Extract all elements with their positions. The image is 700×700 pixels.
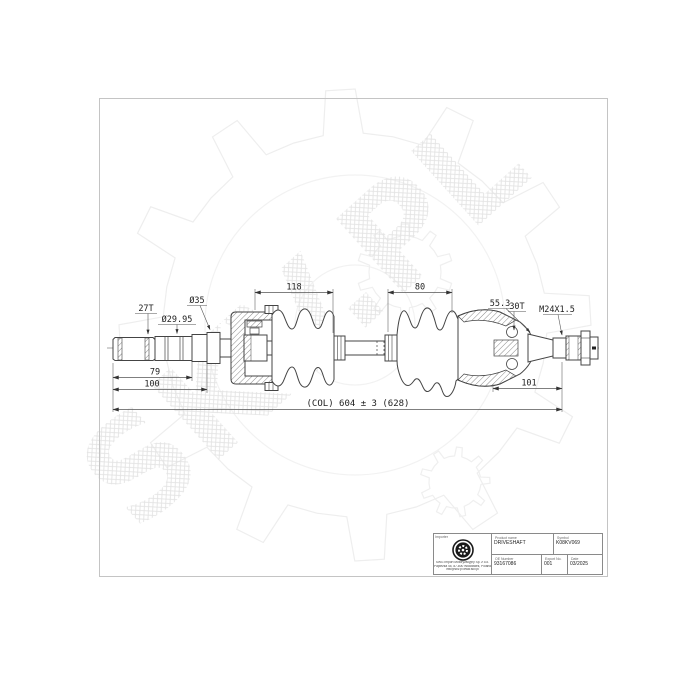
outer-cv-joint (458, 310, 553, 387)
export-no-cell: Export No. 001 (542, 555, 568, 575)
importer-label: Importer (434, 534, 448, 539)
symbol-cell: Symbol K08KV069 (554, 534, 602, 554)
company-stamp-logo (452, 539, 474, 561)
label-joint-length: 55.3 (490, 299, 510, 309)
drawing-sheet-page: SKV.PL (0, 0, 700, 700)
oe-number-cell: OE Number 93167086 (492, 555, 542, 575)
dim-overall-length: (COL) 604 ± 3 (628) (307, 399, 410, 409)
dim-79: 79 (150, 368, 160, 378)
label-thread-spec: M24X1.5 (539, 305, 575, 315)
bearing-ball (507, 359, 518, 370)
label-collar-diameter: Ø35 (189, 295, 204, 306)
date-cell: Date 03/2025 (568, 555, 602, 575)
dim-inner-boot: 118 (286, 283, 301, 293)
label-spline-left: 27T (138, 304, 153, 314)
export-no-value: 001 (544, 561, 567, 568)
technical-drawing-svg: SKV.PL (0, 0, 700, 700)
product-name-cell: Product name DRIVESHAFT (492, 534, 554, 554)
date-value: 03/2025 (570, 561, 602, 568)
title-block-fields: Product name DRIVESHAFT Symbol K08KV069 … (492, 534, 602, 574)
inner-boot (272, 309, 334, 387)
dim-100: 100 (144, 380, 159, 390)
outer-boot (397, 308, 458, 397)
left-stub-shaft (113, 333, 234, 364)
dim-101: 101 (521, 379, 536, 389)
bearing-ball (507, 327, 518, 338)
right-stub-shaft (553, 331, 598, 365)
title-block-importer-cell: Importer SWG Import Motoryzacyjny Sp. z … (434, 534, 492, 574)
dim-outer-boot: 80 (415, 283, 425, 293)
label-spline-right: 30T (509, 302, 524, 312)
product-name-value: DRIVESHAFT (494, 540, 553, 547)
company-address-line3: info@skv.pl www.skv.pl (434, 568, 491, 572)
oe-number-value: 93167086 (494, 561, 541, 568)
symbol-value: K08KV069 (556, 540, 602, 547)
title-block: Importer SWG Import Motoryzacyjny Sp. z … (433, 533, 603, 575)
label-shaft-diameter: Ø29.95 (162, 314, 193, 325)
outer-boot-clamp (385, 335, 397, 361)
